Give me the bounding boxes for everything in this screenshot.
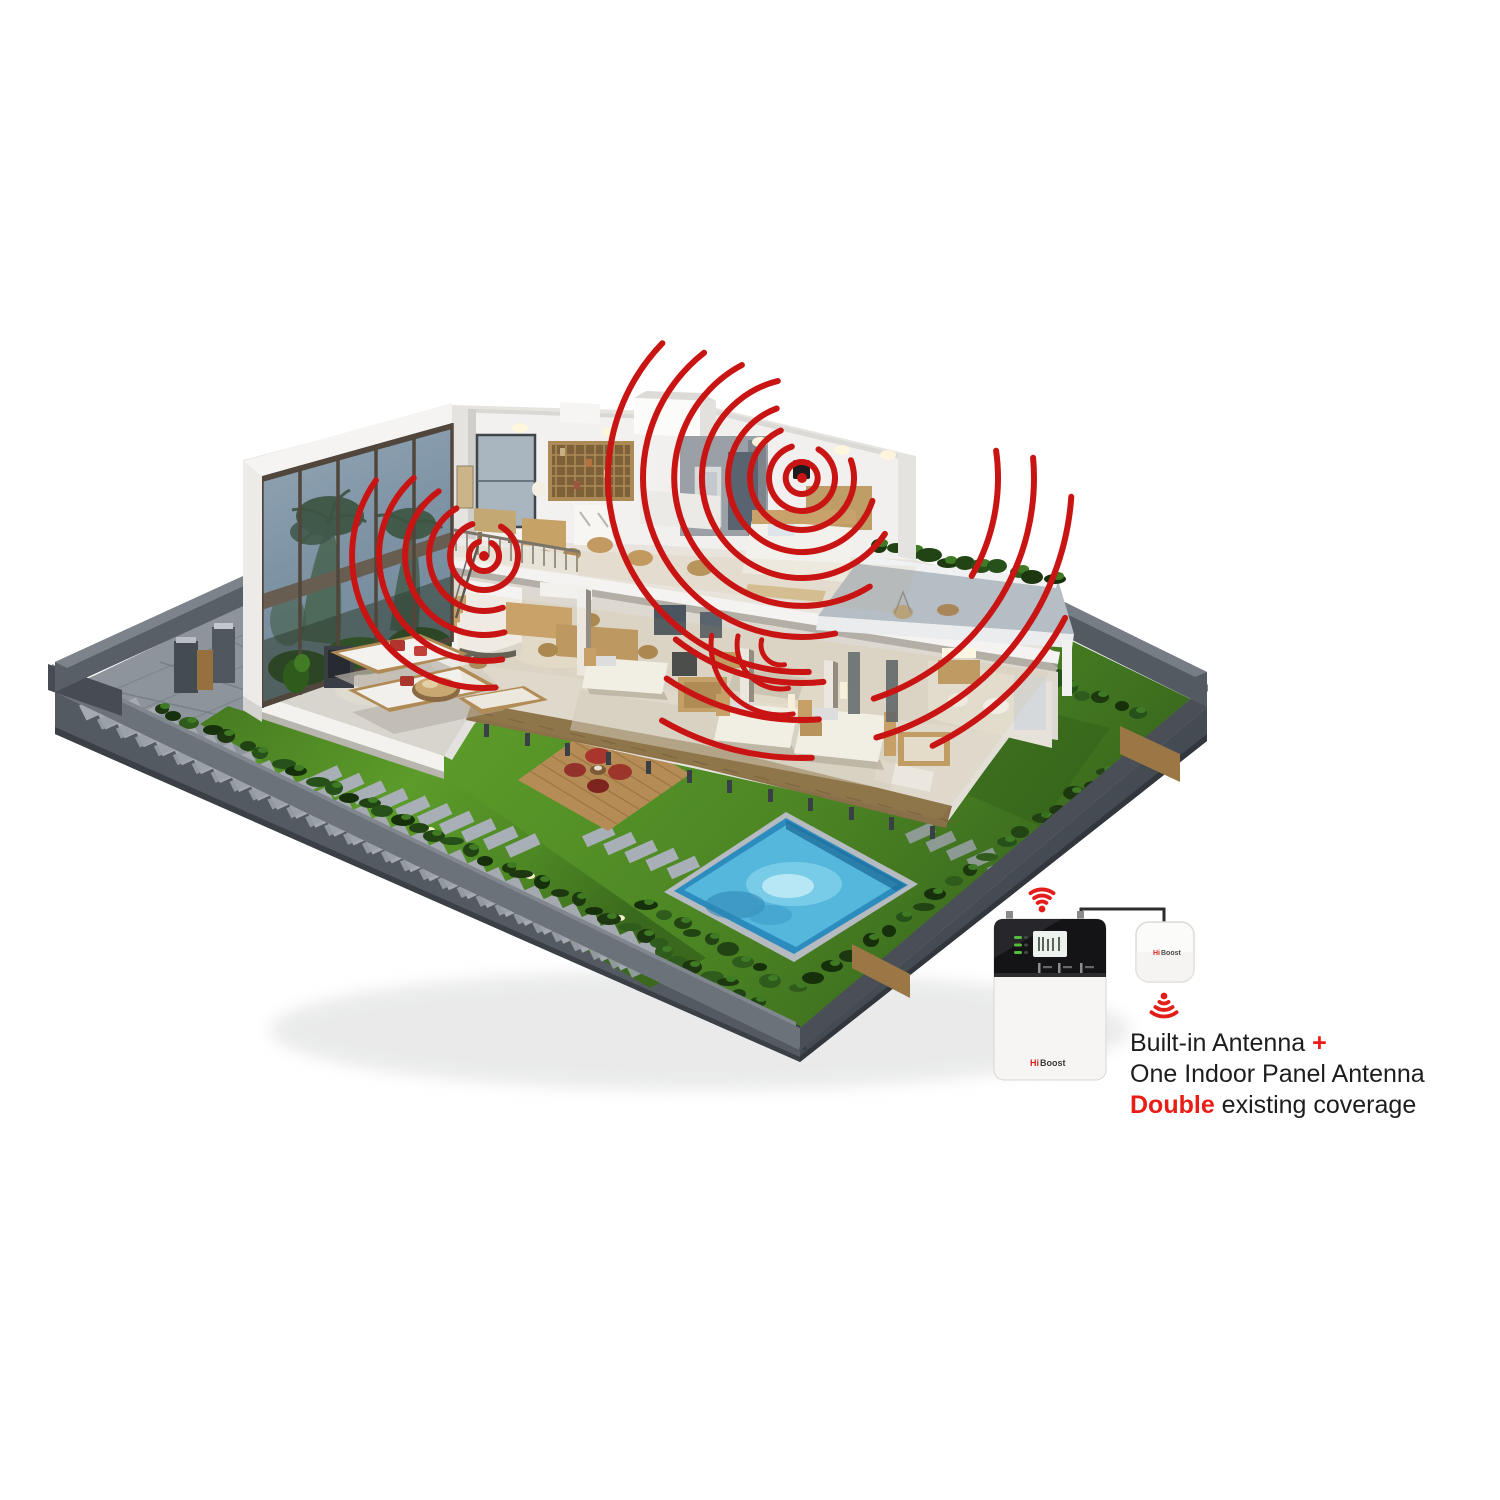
svg-text:Built-in Antenna +: Built-in Antenna + bbox=[1130, 1029, 1327, 1057]
svg-text:Double existing coverage: Double existing coverage bbox=[1130, 1091, 1416, 1119]
svg-text:Boost: Boost bbox=[1040, 1058, 1066, 1068]
svg-text:Hi: Hi bbox=[1030, 1058, 1039, 1068]
svg-text:Boost: Boost bbox=[1161, 950, 1182, 957]
svg-text:One Indoor Panel Antenna: One Indoor Panel Antenna bbox=[1130, 1060, 1425, 1088]
svg-text:Hi: Hi bbox=[1153, 950, 1160, 957]
